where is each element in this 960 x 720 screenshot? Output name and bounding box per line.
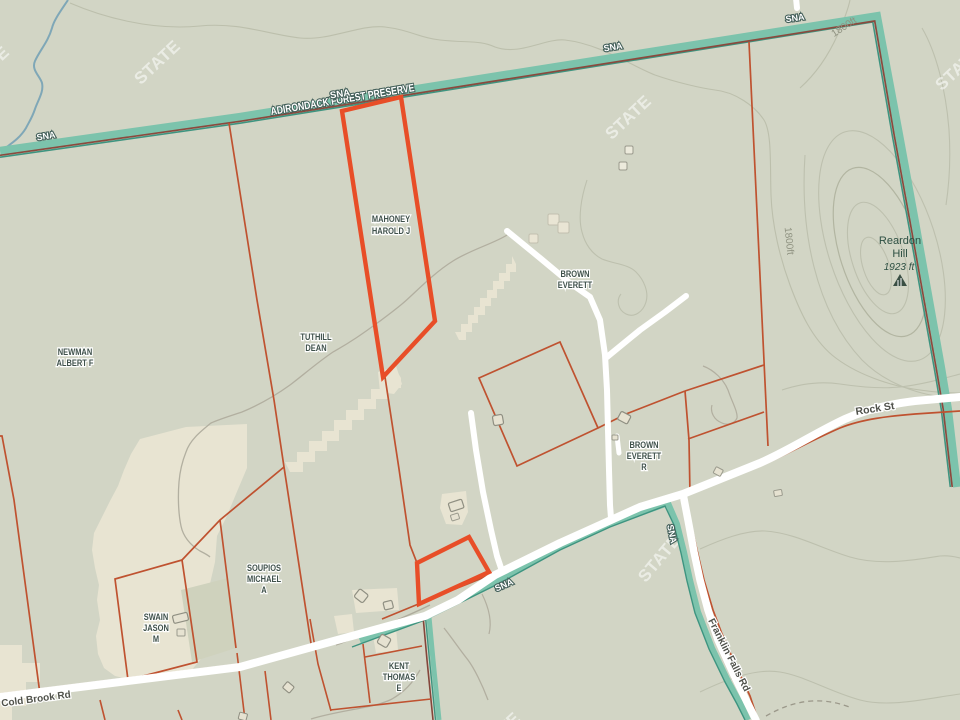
svg-text:MAHONEYHAROLD J: MAHONEYHAROLD J xyxy=(372,213,410,236)
svg-text:NEWMANALBERT F: NEWMANALBERT F xyxy=(57,346,94,368)
svg-text:BROWNEVERETT: BROWNEVERETT xyxy=(558,268,593,290)
